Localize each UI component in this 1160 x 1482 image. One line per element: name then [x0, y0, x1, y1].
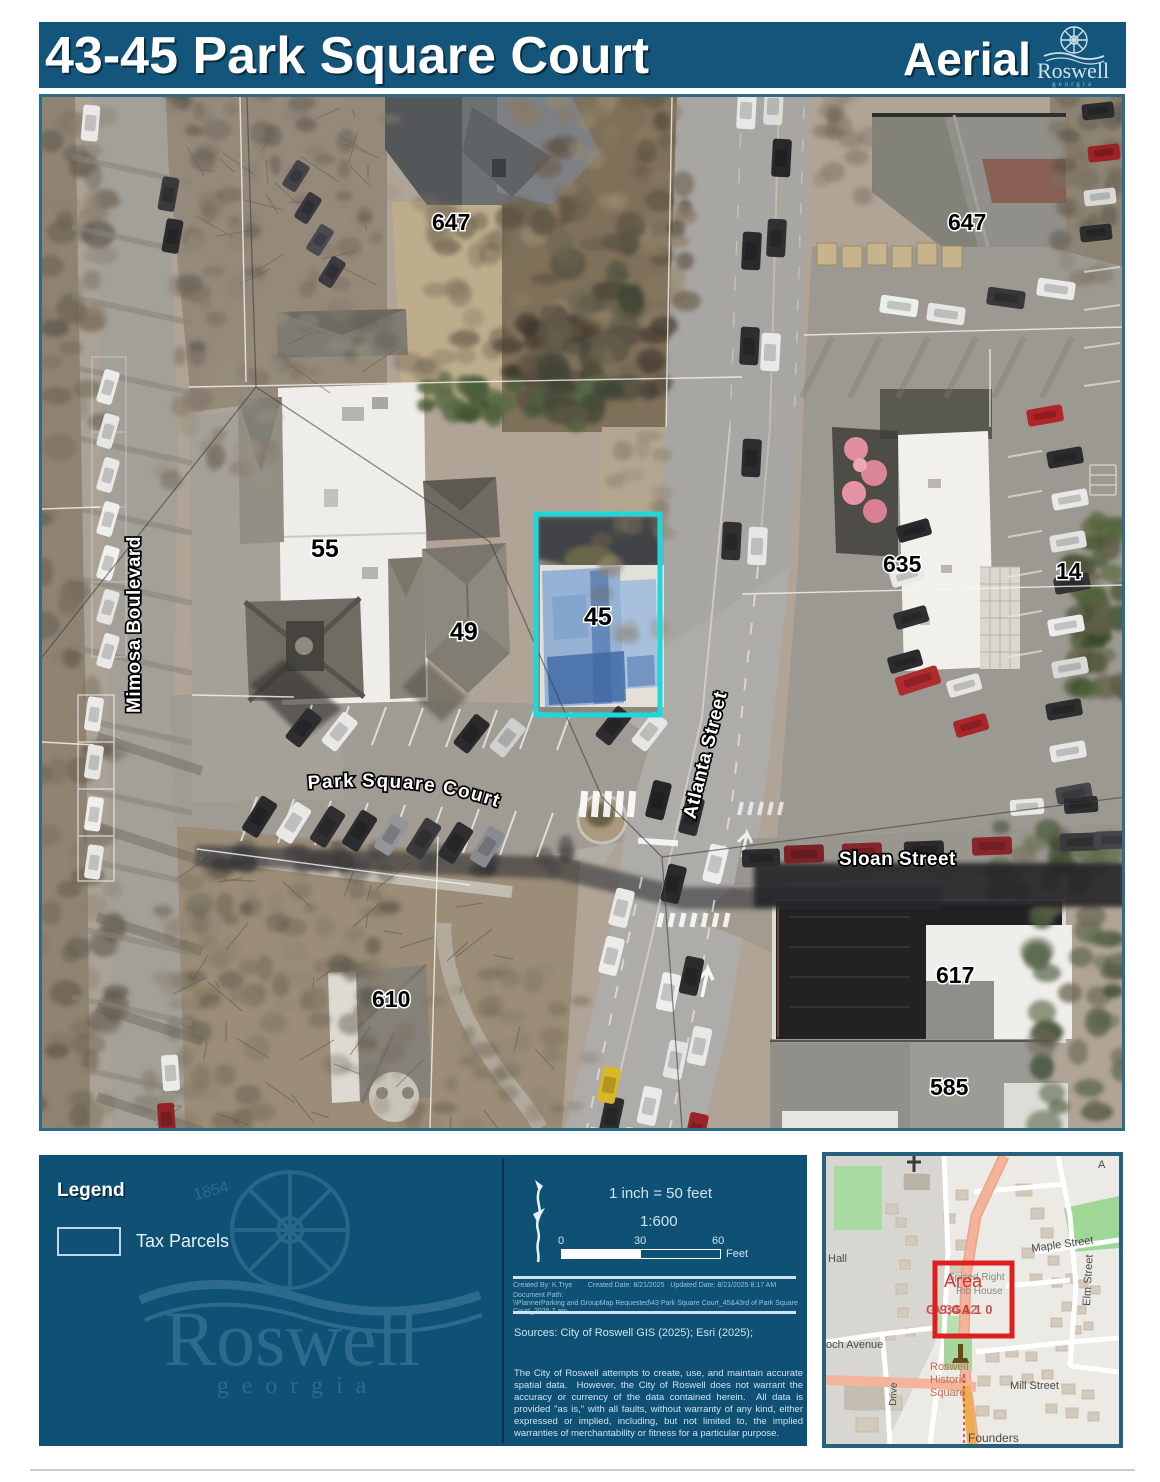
svg-text:Mill Street: Mill Street	[1010, 1380, 1059, 1392]
svg-text:Area: Area	[944, 1271, 983, 1291]
svg-text:Roswell: Roswell	[930, 1361, 969, 1373]
svg-text:Square: Square	[930, 1387, 965, 1399]
svg-text:Drive: Drive	[888, 1382, 900, 1406]
svg-text:14: 14	[1056, 558, 1082, 584]
svg-text:georgia: georgia	[1052, 80, 1094, 88]
svg-text:Founders: Founders	[968, 1431, 1019, 1444]
svg-text:617: 617	[936, 962, 974, 988]
svg-text:Mimosa Boulevard: Mimosa Boulevard	[124, 536, 145, 713]
svg-text:Historic: Historic	[930, 1374, 967, 1386]
svg-text:A 34 12: A 34 12	[932, 1302, 978, 1317]
svg-text:45: 45	[584, 603, 612, 631]
svg-text:635: 635	[883, 551, 922, 577]
svg-text:49: 49	[450, 618, 478, 646]
svg-text:1854: 1854	[192, 1179, 231, 1204]
svg-text:647: 647	[948, 209, 986, 235]
svg-text:55: 55	[311, 535, 339, 563]
svg-text:Hall: Hall	[828, 1253, 847, 1265]
svg-text:Sloan Street: Sloan Street	[839, 849, 956, 870]
svg-text:585: 585	[930, 1074, 969, 1100]
svg-text:610: 610	[372, 986, 410, 1012]
svg-text:A: A	[1098, 1159, 1106, 1171]
svg-text:Roswell: Roswell	[164, 1295, 420, 1382]
svg-text:647: 647	[432, 209, 470, 235]
svg-text:och Avenue: och Avenue	[826, 1339, 883, 1351]
svg-text:georgia: georgia	[217, 1373, 380, 1399]
